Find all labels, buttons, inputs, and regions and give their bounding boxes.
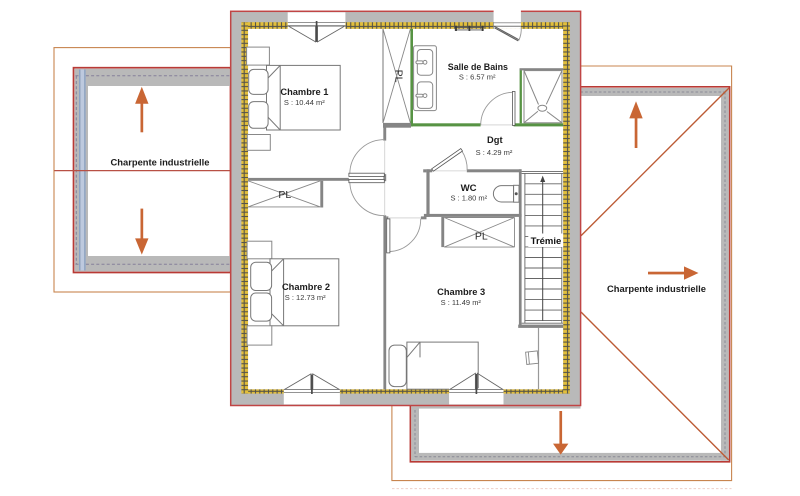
svg-text:Salle de Bains: Salle de Bains [448, 62, 508, 72]
svg-text:Charpente industrielle: Charpente industrielle [607, 283, 706, 294]
svg-text:Chambre 1: Chambre 1 [280, 87, 328, 97]
svg-text:PL: PL [475, 231, 488, 243]
svg-text:S : 12.73 m²: S : 12.73 m² [285, 293, 326, 302]
svg-text:Chambre 2: Chambre 2 [282, 282, 330, 292]
svg-text:PL: PL [278, 189, 291, 201]
svg-text:S : 1.80 m²: S : 1.80 m² [450, 193, 487, 202]
svg-text:Charpente industrielle: Charpente industrielle [111, 157, 210, 168]
svg-text:PL: PL [393, 70, 405, 83]
svg-text:S : 4.29 m²: S : 4.29 m² [476, 148, 513, 157]
svg-text:S : 6.57 m²: S : 6.57 m² [459, 73, 496, 82]
svg-text:S : 10.44 m²: S : 10.44 m² [284, 98, 325, 107]
svg-text:S : 11.49 m²: S : 11.49 m² [441, 298, 482, 307]
svg-text:Chambre 3: Chambre 3 [437, 287, 485, 297]
svg-text:Dgt: Dgt [487, 135, 503, 145]
svg-text:Trémie: Trémie [531, 236, 562, 247]
